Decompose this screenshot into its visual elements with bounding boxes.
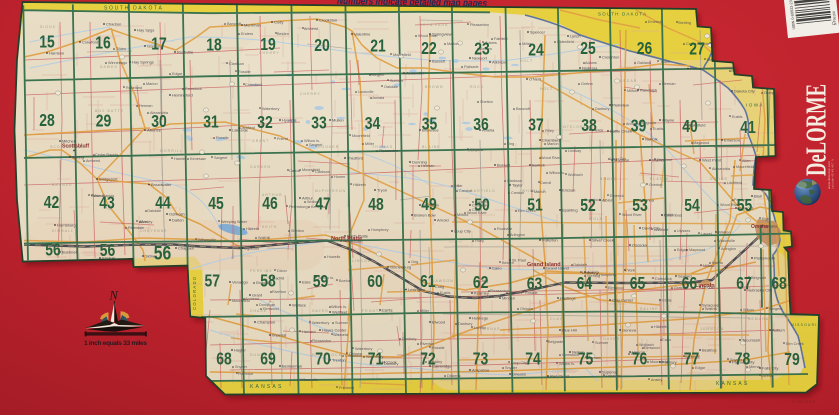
- svg-text:Latitude 43°48.467' N: Latitude 43°48.467' N: [831, 159, 835, 189]
- svg-text:N: N: [109, 289, 119, 303]
- svg-text:© DeLorme: © DeLorme: [792, 398, 816, 404]
- svg-text:1 inch equals 33 miles: 1 inch equals 33 miles: [84, 340, 147, 347]
- svg-text:www.delorme.com: www.delorme.com: [827, 161, 831, 190]
